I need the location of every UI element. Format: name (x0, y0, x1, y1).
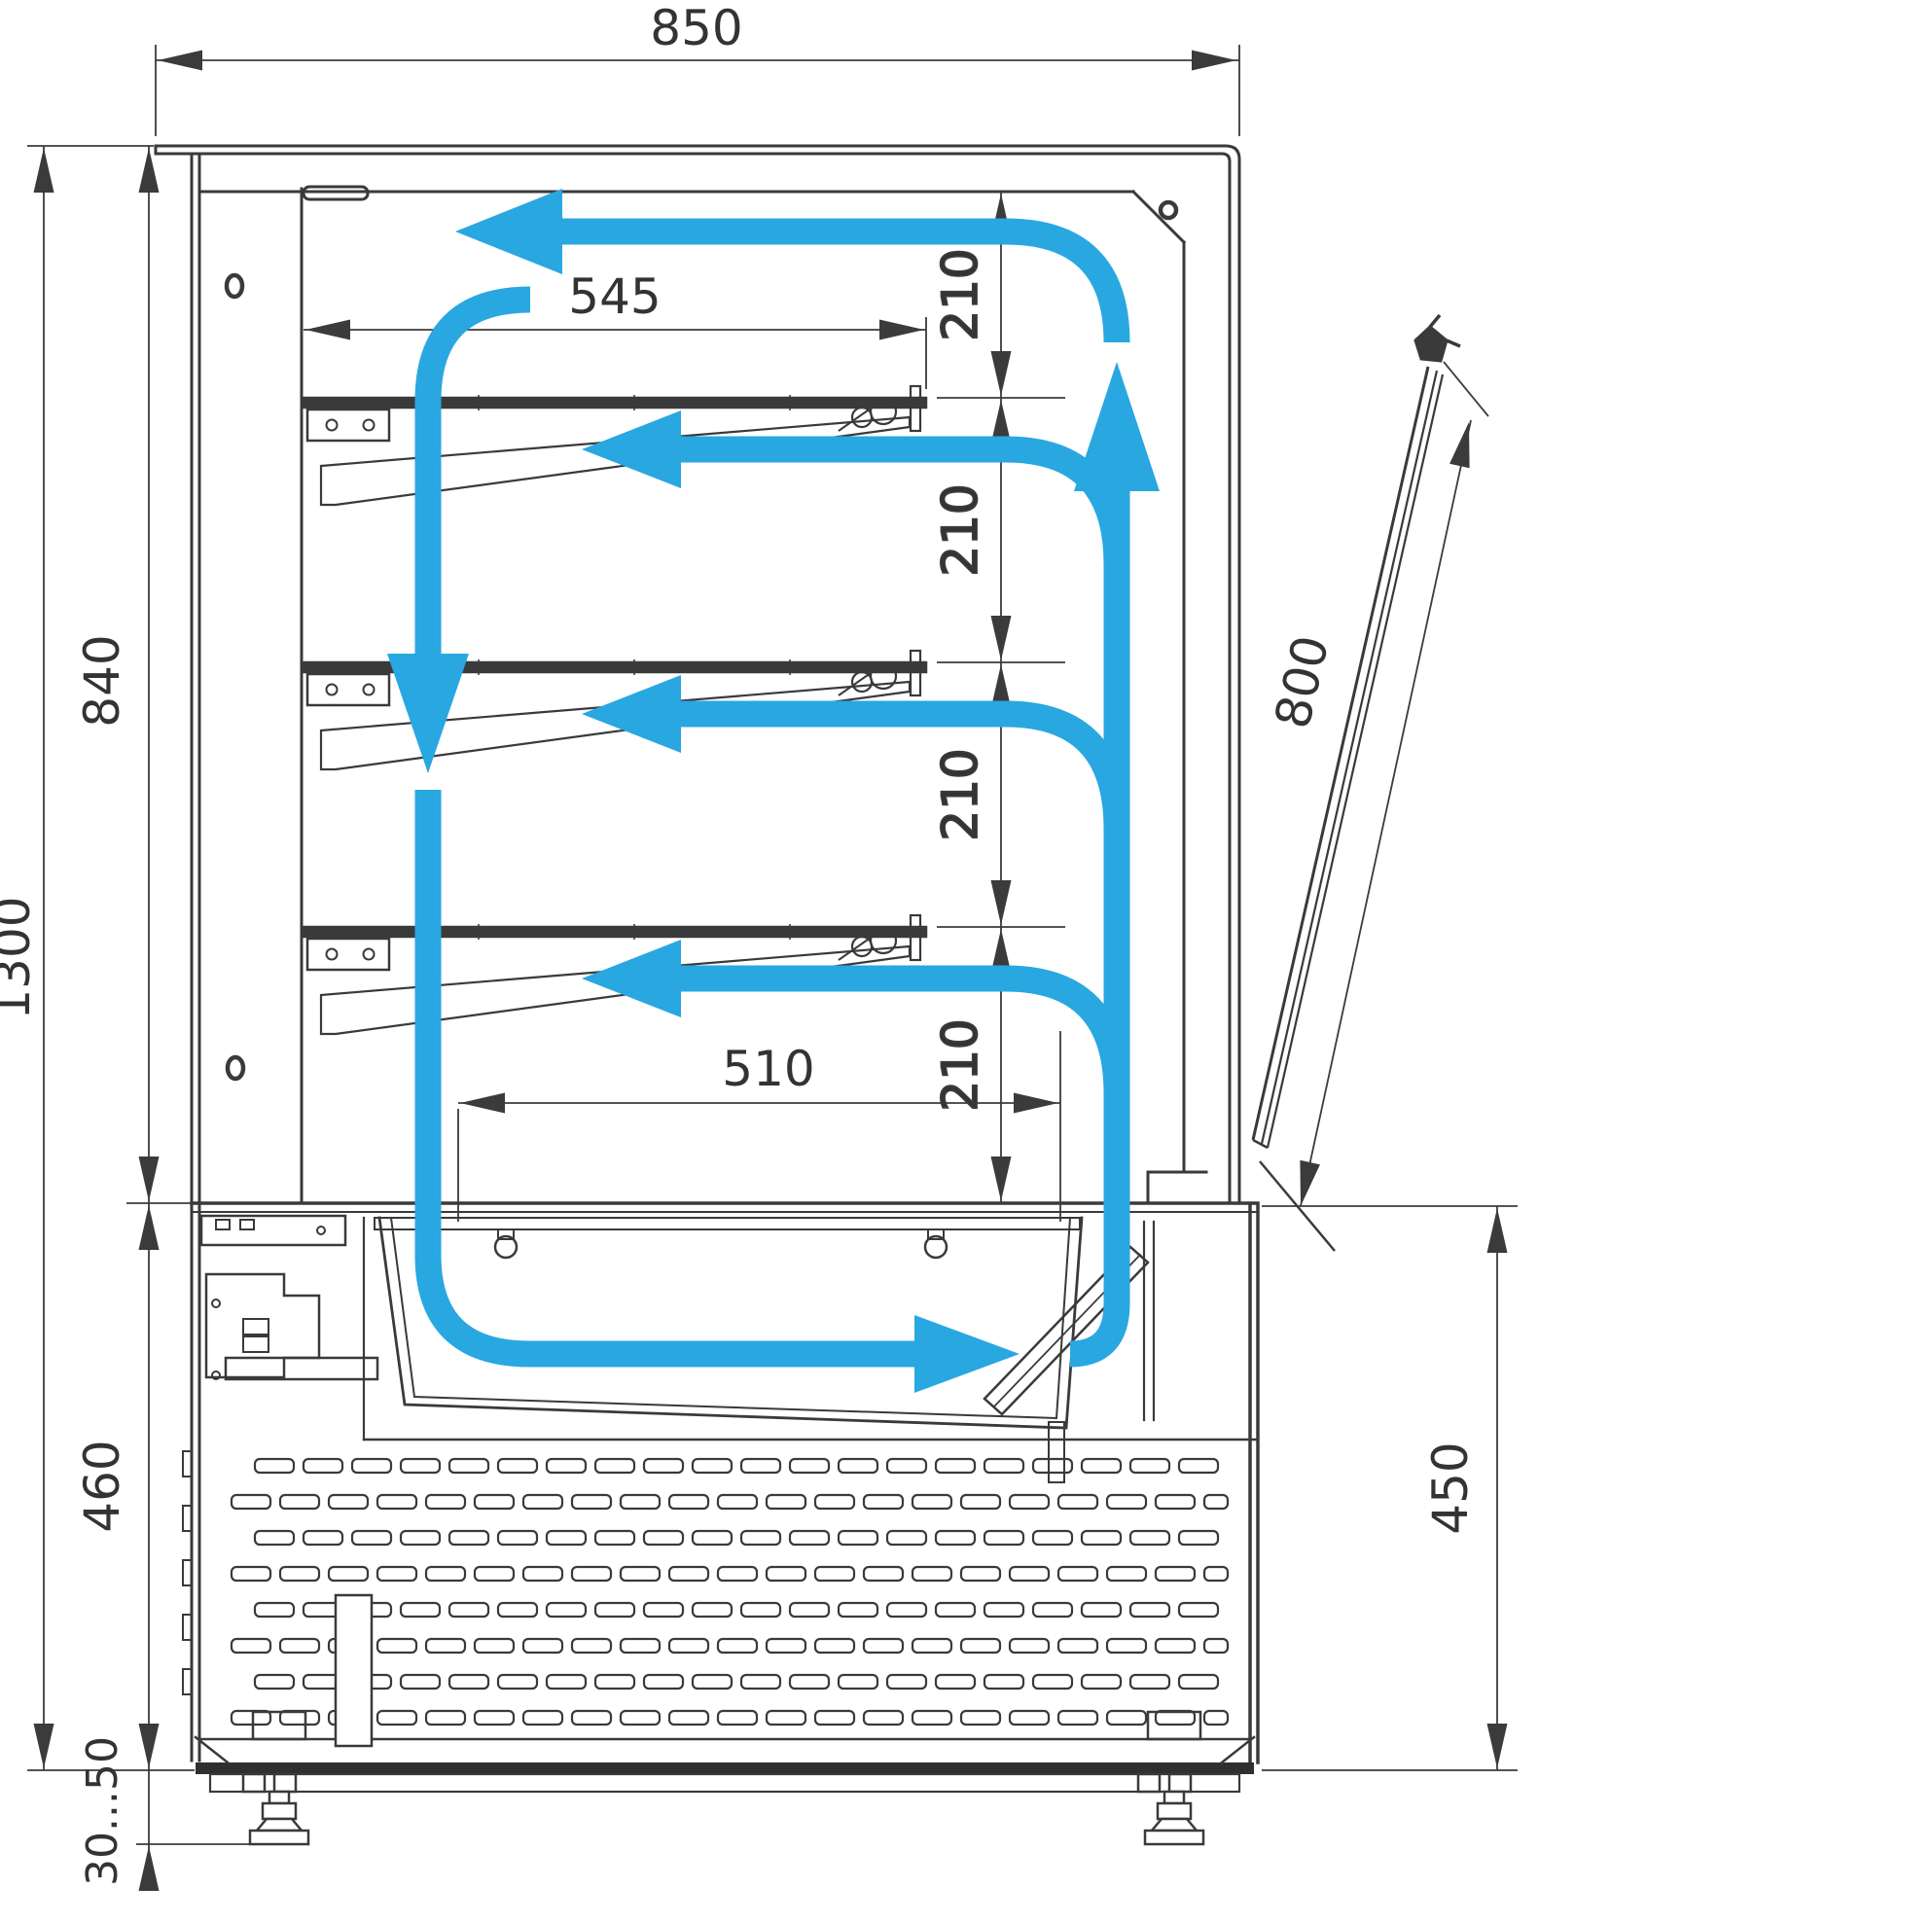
grille-slot (572, 1711, 611, 1725)
grille-slot (1058, 1639, 1097, 1653)
grille-slot (644, 1603, 683, 1617)
grille-slot (1130, 1675, 1169, 1689)
grille-slot (1058, 1711, 1097, 1725)
grille-slot (887, 1531, 926, 1545)
foot-cone (1152, 1819, 1197, 1831)
dim-arrowhead (34, 148, 54, 193)
grille-slot (377, 1711, 416, 1725)
grille-slot (790, 1675, 829, 1689)
grille-slot (449, 1603, 488, 1617)
dim-arrowhead (1449, 422, 1470, 468)
grille-slot (741, 1531, 780, 1545)
grille-slot (280, 1495, 319, 1509)
airflow-riser-right (1070, 491, 1117, 1354)
grille-slot (475, 1639, 514, 1653)
dim-arrowhead (139, 1846, 160, 1891)
grille-slot (767, 1711, 805, 1725)
grille-slot (498, 1459, 537, 1473)
dim-arrowhead (1487, 1208, 1508, 1253)
grille-slot (1107, 1639, 1146, 1653)
grille-slot (621, 1711, 660, 1725)
grille-slot (547, 1675, 586, 1689)
dim-arrowhead (305, 320, 350, 340)
dim-arrowhead (1192, 51, 1236, 71)
grille-slot (547, 1531, 586, 1545)
well-inner (391, 1218, 1070, 1418)
grille-slot (912, 1711, 951, 1725)
grille-slot (767, 1567, 805, 1581)
dim-arrowhead (34, 1724, 54, 1768)
label-shelf-gap: 210 (932, 248, 988, 340)
label-shelf-gap: 210 (932, 1018, 988, 1111)
grille-slot (887, 1603, 926, 1617)
label-shelf-gap: 210 (932, 748, 988, 840)
foot-tab-b (274, 1774, 296, 1792)
grille-slot (741, 1459, 780, 1473)
grille-slot (1107, 1495, 1146, 1509)
grille-slot (232, 1639, 270, 1653)
grille-slot (936, 1531, 975, 1545)
arrow-left-top-icon (455, 189, 562, 274)
grille-slot (621, 1495, 660, 1509)
grille-slot (595, 1675, 634, 1689)
arrow-left-shelf3-icon (582, 940, 681, 1017)
door-glass-inner (1268, 374, 1443, 1148)
grille-slot (693, 1531, 732, 1545)
label-foot-adjust: 30...50 (78, 1736, 127, 1886)
grille-slot (475, 1711, 514, 1725)
grille-slot (1082, 1459, 1121, 1473)
grille-slot (669, 1567, 708, 1581)
grille-slot (329, 1495, 368, 1509)
grille-slot (912, 1495, 951, 1509)
grille-slot (1010, 1567, 1049, 1581)
grille-slot (426, 1567, 465, 1581)
arrow-right-well-icon (914, 1315, 1020, 1393)
control-slot-a (216, 1220, 230, 1229)
grille-slot (1082, 1675, 1121, 1689)
grille-slot (815, 1639, 854, 1653)
grille-slot (547, 1459, 586, 1473)
door-handle-profile (1415, 327, 1447, 361)
grille-slot (864, 1711, 903, 1725)
dim-arrowhead (139, 1205, 160, 1250)
grille-slot (475, 1567, 514, 1581)
grille-slot (984, 1459, 1023, 1473)
grille-slot (644, 1459, 683, 1473)
grille-slot (961, 1567, 1000, 1581)
grille-slot (790, 1603, 829, 1617)
grille-slot (815, 1495, 854, 1509)
control-box-port-b (243, 1336, 268, 1352)
grille-slot (1204, 1495, 1228, 1509)
grille-slot (523, 1639, 562, 1653)
shelf-slab (304, 398, 926, 408)
grille-slot (595, 1531, 634, 1545)
grille-slot (449, 1459, 488, 1473)
ventilation-grille (232, 1459, 1228, 1725)
label-shelf-gap: 210 (932, 483, 988, 576)
grille-slot (644, 1531, 683, 1545)
grille-slot (936, 1603, 975, 1617)
control-box (206, 1274, 319, 1377)
grille-slot (693, 1603, 732, 1617)
foot-tab-a (243, 1774, 265, 1792)
foot-pad (1145, 1831, 1203, 1844)
grille-slot (1058, 1495, 1097, 1509)
grille-slot (790, 1459, 829, 1473)
dim-arrowhead (139, 1157, 160, 1201)
grille-slot (718, 1639, 757, 1653)
control-box-port-a (243, 1319, 268, 1335)
grille-slot (815, 1567, 854, 1581)
grille-slot (1204, 1567, 1228, 1581)
grille-slot (498, 1531, 537, 1545)
plinth-band (196, 1762, 1254, 1774)
grille-slot (767, 1495, 805, 1509)
dim-arrowhead (1487, 1724, 1508, 1768)
grille-slot (523, 1495, 562, 1509)
grille-slot (523, 1567, 562, 1581)
foot-stem (1164, 1792, 1184, 1803)
dim-arrowhead (1300, 1160, 1320, 1206)
corner-hole (1161, 202, 1176, 218)
grille-slot (426, 1639, 465, 1653)
grille-slot (669, 1711, 708, 1725)
grille-slot (1010, 1639, 1049, 1653)
grille-slot (1179, 1459, 1218, 1473)
grille-slot (1010, 1495, 1049, 1509)
grille-slot (401, 1531, 440, 1545)
airflow-bottom-run (428, 790, 914, 1354)
grille-slot (669, 1495, 708, 1509)
shelf-bracket (307, 409, 389, 441)
grille-slot (1156, 1495, 1195, 1509)
grille-slot (329, 1567, 368, 1581)
grille-slot (1033, 1675, 1072, 1689)
grille-slot (572, 1495, 611, 1509)
grille-slot (1130, 1459, 1169, 1473)
bottom-rail (210, 1774, 1239, 1792)
grille-slot (864, 1639, 903, 1653)
grille-slot (718, 1567, 757, 1581)
grille-slot (1179, 1675, 1218, 1689)
control-screw-top (317, 1227, 325, 1234)
control-slot-b (240, 1220, 254, 1229)
label-front-height: 450 (1422, 1441, 1479, 1534)
grille-slot (936, 1459, 975, 1473)
grille-slot (572, 1567, 611, 1581)
grille-slot (815, 1711, 854, 1725)
label-top-width: 850 (650, 0, 742, 56)
grille-slot (401, 1459, 440, 1473)
grille-slot (595, 1603, 634, 1617)
adjustable-foot (243, 1774, 308, 1844)
arrow-down-icon (387, 654, 469, 773)
grille-slot (377, 1495, 416, 1509)
grille-slot (790, 1531, 829, 1545)
grille-slot (232, 1567, 270, 1581)
dim-arrowhead (158, 51, 202, 71)
grille-slot (839, 1531, 877, 1545)
grille-slot (475, 1495, 514, 1509)
label-deck-depth: 510 (722, 1041, 814, 1097)
grille-slot (839, 1675, 877, 1689)
foot-tab-b (1169, 1774, 1191, 1792)
grille-slot (255, 1603, 294, 1617)
grille-slot (961, 1495, 1000, 1509)
grille-slot (498, 1603, 537, 1617)
grille-slot (864, 1567, 903, 1581)
grille-slot (377, 1567, 416, 1581)
dim-arrowhead (879, 320, 924, 340)
grille-slot (1130, 1531, 1169, 1545)
shelf-slab (304, 927, 926, 937)
grille-slot (449, 1675, 488, 1689)
grille-slot (741, 1603, 780, 1617)
grille-slot (498, 1675, 537, 1689)
grille-slot (255, 1675, 294, 1689)
grille-slot (1010, 1711, 1049, 1725)
grille-slot (1107, 1567, 1146, 1581)
grille-slot (961, 1639, 1000, 1653)
grille-slot (936, 1675, 975, 1689)
grille-slot (595, 1459, 634, 1473)
grille-slot (1130, 1603, 1169, 1617)
control-screw-a (212, 1299, 220, 1307)
adjustable-foot (1138, 1774, 1203, 1844)
label-total-height: 1300 (0, 896, 41, 1019)
dim-arrowhead (1014, 1093, 1058, 1114)
label-door-length: 800 (1264, 630, 1340, 733)
leveling-feet (243, 1774, 1203, 1844)
grille-slot (523, 1711, 562, 1725)
foot-nut (1158, 1803, 1191, 1819)
well-outer (379, 1218, 1082, 1428)
airflow-downflow-upper (428, 300, 530, 654)
foot-nut (263, 1803, 296, 1819)
grille-slot (839, 1459, 877, 1473)
grille-slot (352, 1531, 391, 1545)
drawing-page: 210210210210 850 545 510 1300 840 460 30… (0, 0, 1932, 1922)
grille-slot (377, 1639, 416, 1653)
label-lower-height: 460 (74, 1440, 130, 1532)
grille-slot (547, 1603, 586, 1617)
grille-slot (887, 1459, 926, 1473)
label-upper-height: 840 (74, 634, 130, 727)
grille-slot (741, 1675, 780, 1689)
grille-slot (1058, 1567, 1097, 1581)
technical-drawing-display-case-section: 210210210210 850 545 510 1300 840 460 30… (0, 0, 1932, 1922)
grille-slot (1033, 1531, 1072, 1545)
grille-slot (644, 1675, 683, 1689)
grille-slot (839, 1603, 877, 1617)
grille-slot (426, 1711, 465, 1725)
arrow-up-icon (1074, 362, 1160, 491)
airflow-shelf1-run (681, 449, 1117, 564)
shelf-bracket (307, 674, 389, 705)
foot-pad (250, 1831, 308, 1844)
grille-slot (280, 1639, 319, 1653)
grille-slot (1156, 1639, 1195, 1653)
grille-slot (280, 1567, 319, 1581)
grille-slot (1082, 1603, 1121, 1617)
grille-slot (669, 1639, 708, 1653)
grille-slot (572, 1639, 611, 1653)
door-glass-mid (1262, 371, 1437, 1144)
mounting-hole-upper (227, 275, 242, 297)
grille-slot (693, 1675, 732, 1689)
grille-slot (255, 1459, 294, 1473)
grille-slot (984, 1531, 1023, 1545)
grille-slot (621, 1567, 660, 1581)
grille-slot (304, 1531, 342, 1545)
grille-slot (1107, 1711, 1146, 1725)
mounting-hole-lower (228, 1057, 243, 1079)
deck-front-rail (375, 1218, 1080, 1229)
door-bottom-cap (1253, 1140, 1268, 1148)
grille-slot (984, 1603, 1023, 1617)
grille-slot (961, 1711, 1000, 1725)
grille-slot (449, 1531, 488, 1545)
grille-slot (401, 1603, 440, 1617)
label-shelf-depth: 545 (568, 268, 661, 325)
grille-slot (1033, 1603, 1072, 1617)
foot-tab-a (1138, 1774, 1160, 1792)
grille-slot (1179, 1531, 1218, 1545)
foot-stem (269, 1792, 289, 1803)
glass-door-open (1253, 315, 1460, 1148)
grille-slot (1033, 1459, 1072, 1473)
grille-slot (1204, 1711, 1228, 1725)
grille-slot (864, 1495, 903, 1509)
drain-pipe-front (336, 1595, 372, 1746)
grille-slot (912, 1639, 951, 1653)
grille-slot (232, 1495, 270, 1509)
grille-slot (718, 1495, 757, 1509)
grille-slot (1204, 1639, 1228, 1653)
grille-slot (693, 1459, 732, 1473)
grille-slot (767, 1639, 805, 1653)
control-lower-bar (226, 1358, 377, 1379)
grille-slot (401, 1675, 440, 1689)
grille-slot (912, 1567, 951, 1581)
grille-slot (255, 1531, 294, 1545)
grille-slot (887, 1675, 926, 1689)
shelf-bracket (307, 939, 389, 970)
grille-slot (1156, 1567, 1195, 1581)
grille-slot (352, 1459, 391, 1473)
grille-slot (1082, 1531, 1121, 1545)
grille-slot (984, 1675, 1023, 1689)
grille-slot (621, 1639, 660, 1653)
foot-cone (257, 1819, 302, 1831)
arrow-left-shelf2-icon (582, 675, 681, 753)
grille-slot (426, 1495, 465, 1509)
airflow-shelf2-run (681, 714, 1117, 829)
dim-arrowhead (460, 1093, 505, 1114)
arrow-left-shelf1-icon (582, 410, 681, 488)
grille-slot (304, 1459, 342, 1473)
dim-arrowhead (139, 1724, 160, 1768)
chamber-corner-chamfer (1133, 192, 1184, 242)
grille-slot (718, 1711, 757, 1725)
grille-slot (1179, 1603, 1218, 1617)
ext-800-top (1444, 362, 1488, 416)
